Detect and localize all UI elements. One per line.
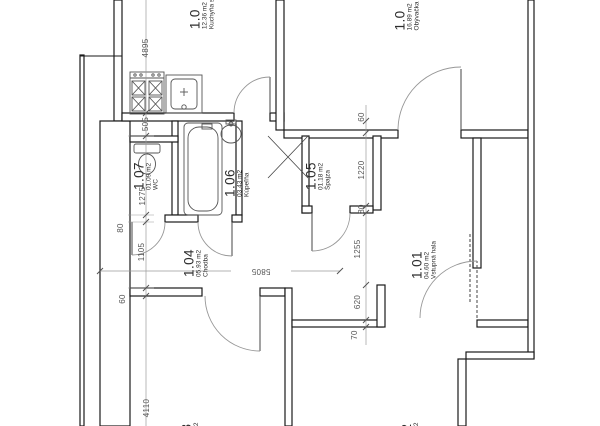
- room-area: 04.60 m2: [423, 241, 430, 279]
- room-name: Chodba: [203, 249, 210, 277]
- room-area: 16.89 m2: [406, 2, 413, 31]
- room-name: Obývačka: [414, 2, 421, 31]
- room-name: WC: [153, 162, 160, 190]
- floor-plan-canvas: 1.0 12.36 m2 Kuchyňa s 1.0 16.89 m2 Obýv…: [0, 0, 600, 426]
- kitchen-sink-symbol: [166, 75, 202, 113]
- room-number: 1.04: [182, 249, 195, 277]
- room-number: 1.06: [223, 169, 236, 197]
- room-number: 1.0: [188, 0, 201, 29]
- room-area: m2: [193, 422, 200, 426]
- room-number: 1.05: [304, 162, 317, 190]
- room-area: m2: [413, 422, 420, 426]
- room-area: 03.43 m2: [236, 169, 243, 197]
- floor-plan-drawing: [0, 0, 600, 426]
- room-number: 1.0: [393, 2, 406, 31]
- room-name: Kúpeľňa: [244, 169, 251, 197]
- dimension-lines: [100, 0, 366, 426]
- room-number: 1.01: [410, 241, 423, 279]
- stove-symbol: [130, 72, 164, 114]
- room-name: Špajza: [325, 162, 332, 190]
- room-number: 2: [400, 422, 413, 426]
- room-name: Vstupná hala: [431, 241, 438, 279]
- dimensions-layer: [97, 0, 369, 426]
- bathtub-symbol: [184, 123, 222, 215]
- room-name: Kuchyňa s: [209, 0, 216, 29]
- room-number: 3: [180, 422, 193, 426]
- room-area: 05.93 m2: [195, 249, 202, 277]
- room-area: 12.36 m2: [201, 0, 208, 29]
